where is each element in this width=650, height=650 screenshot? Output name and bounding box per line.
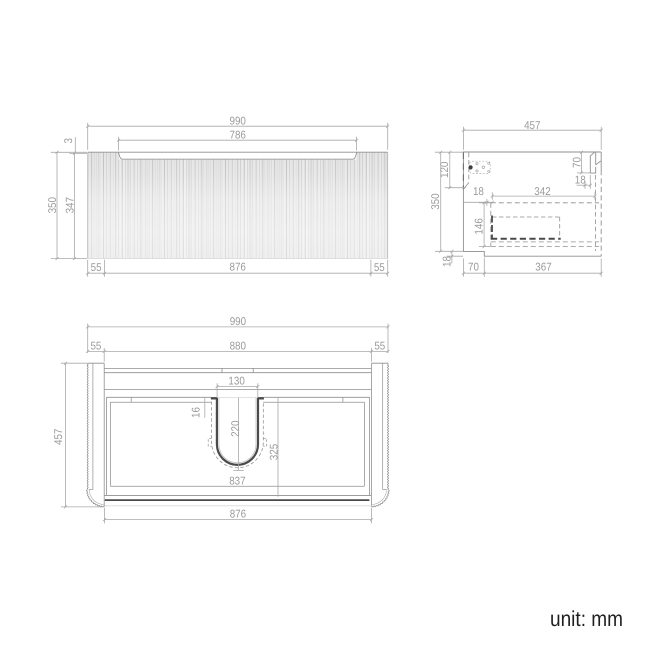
- svg-text:55: 55: [374, 340, 385, 352]
- svg-text:876: 876: [230, 262, 246, 274]
- svg-text:55: 55: [374, 262, 385, 274]
- svg-text:457: 457: [524, 120, 540, 132]
- svg-text:18: 18: [473, 186, 484, 198]
- svg-text:990: 990: [230, 316, 246, 328]
- svg-text:342: 342: [534, 186, 550, 198]
- svg-text:220: 220: [230, 421, 242, 437]
- svg-text:876: 876: [230, 509, 246, 521]
- svg-text:990: 990: [230, 115, 246, 127]
- svg-text:16: 16: [190, 407, 202, 418]
- svg-text:70: 70: [468, 261, 479, 273]
- svg-text:457: 457: [53, 429, 65, 445]
- svg-text:880: 880: [230, 340, 246, 352]
- svg-text:3: 3: [63, 138, 75, 144]
- svg-text:347: 347: [64, 197, 76, 213]
- svg-text:325: 325: [269, 444, 281, 460]
- svg-text:18: 18: [441, 256, 453, 267]
- svg-text:350: 350: [47, 197, 59, 213]
- svg-text:unit: mm: unit: mm: [550, 607, 623, 631]
- svg-text:18: 18: [575, 174, 586, 186]
- svg-text:837: 837: [229, 475, 245, 487]
- svg-text:367: 367: [535, 261, 551, 273]
- svg-text:786: 786: [230, 130, 246, 142]
- svg-text:55: 55: [90, 340, 101, 352]
- svg-text:130: 130: [228, 376, 244, 388]
- svg-text:70: 70: [572, 157, 584, 168]
- svg-text:350: 350: [430, 193, 442, 209]
- svg-text:146: 146: [474, 218, 486, 234]
- svg-text:55: 55: [91, 262, 102, 274]
